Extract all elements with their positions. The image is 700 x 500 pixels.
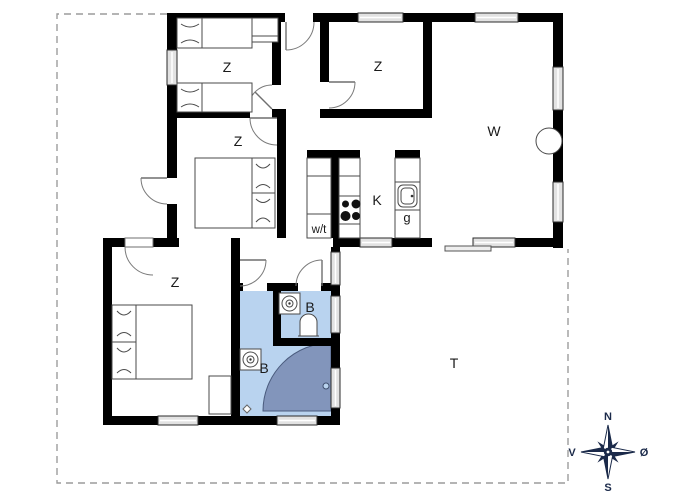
sink-icon	[240, 349, 261, 370]
wall-segment	[395, 150, 420, 158]
double-bed-icon	[112, 305, 192, 379]
wall-segment	[331, 150, 339, 238]
utility-label: w/t	[311, 224, 328, 236]
wall-segment	[273, 338, 333, 346]
wall-segment	[277, 118, 286, 238]
wall-segment	[331, 408, 340, 425]
wall-segment	[167, 85, 177, 178]
shower-drain-icon	[323, 383, 329, 389]
bedroom-mid-label: Z	[234, 133, 243, 149]
wall-segment	[331, 247, 340, 252]
wall-segment	[103, 238, 112, 425]
wall-segment	[553, 13, 563, 67]
bedroom-nw-label: Z	[223, 59, 232, 75]
wall-segment	[198, 416, 277, 425]
wall-segment	[423, 22, 432, 118]
exterior-door-west	[141, 178, 167, 204]
wood-stove-icon	[536, 128, 562, 154]
closet-icon	[209, 376, 231, 414]
door-bedroom-n	[329, 82, 355, 108]
wall-segment	[167, 13, 177, 50]
window	[331, 296, 340, 333]
wall-segment	[267, 283, 298, 291]
kitchen-label: K	[372, 192, 382, 208]
exterior-door-bedroom-sw	[125, 238, 153, 275]
wall-segment	[103, 238, 125, 247]
compass-north-label: N	[604, 411, 612, 423]
bathroom-small-label: B	[305, 299, 314, 315]
sink-icon	[279, 293, 300, 314]
window	[553, 182, 563, 222]
kitchen-counter-stove	[339, 158, 361, 238]
nightstand-icon	[252, 18, 278, 42]
bedroom-sw-label: Z	[171, 274, 180, 290]
wall-segment	[231, 238, 240, 416]
compass-south-label: S	[604, 482, 611, 494]
door-bedroom-mid	[250, 118, 277, 145]
single-bed-icon	[177, 18, 252, 48]
wall-segment	[272, 109, 286, 118]
terrace-label: T	[450, 355, 459, 371]
wall-segment	[320, 109, 432, 118]
bathroom-large-label: B	[259, 360, 268, 376]
window	[277, 416, 317, 425]
window	[158, 416, 198, 425]
wall-segment	[403, 13, 475, 22]
compass-west-label: V	[568, 447, 576, 459]
floorplan-page: Z Z Z Z W K g w/t B B T N S V Ø	[0, 0, 700, 500]
wall-segment	[313, 13, 358, 22]
entrance-door	[286, 22, 314, 50]
sliding-terrace-door	[445, 246, 491, 251]
window	[358, 13, 403, 22]
kitchen-sink-icon	[398, 185, 417, 207]
living-room-label: W	[487, 123, 501, 139]
window	[360, 238, 392, 247]
sink-unit-label: g	[403, 210, 410, 225]
door-bathroom-small	[296, 260, 322, 286]
double-bed-icon	[195, 158, 275, 228]
wall-segment	[320, 22, 329, 82]
window	[331, 368, 340, 408]
bedroom-n-label: Z	[374, 58, 383, 74]
single-bed-icon	[177, 83, 252, 112]
toilet-icon	[298, 314, 319, 336]
wall-segment	[515, 238, 563, 247]
window	[167, 50, 177, 85]
wall-segment	[103, 416, 158, 425]
floorplan-drawing: Z Z Z Z W K g w/t B B T N S V Ø	[0, 0, 700, 500]
window	[331, 252, 340, 285]
window	[475, 13, 518, 22]
window	[553, 67, 563, 110]
door-bathroom-large	[240, 260, 266, 286]
wall-segment	[153, 238, 179, 247]
wall-segment	[333, 238, 360, 247]
kitchen-island-sink	[395, 158, 420, 238]
compass-east-label: Ø	[640, 447, 649, 459]
wall-segment	[392, 238, 432, 247]
compass-rose-icon: N S V Ø	[568, 411, 648, 494]
